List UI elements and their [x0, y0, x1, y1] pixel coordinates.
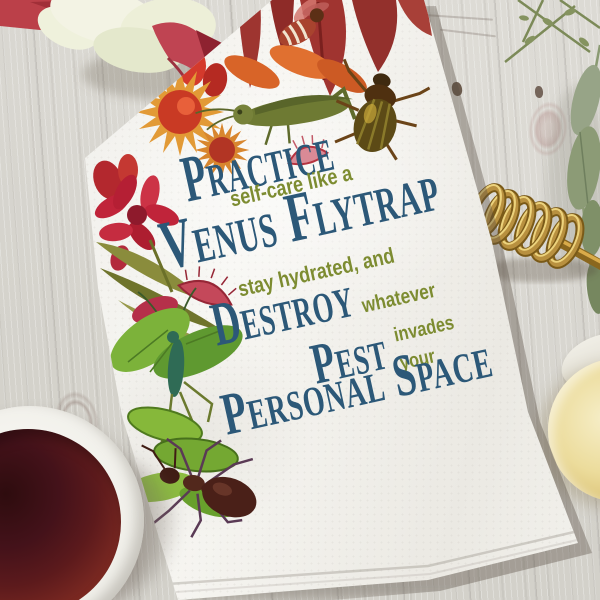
product-photo: Practice self-care like a Venus Flytrap …	[0, 0, 600, 600]
eucalyptus-sprigs-icon	[505, 0, 600, 62]
